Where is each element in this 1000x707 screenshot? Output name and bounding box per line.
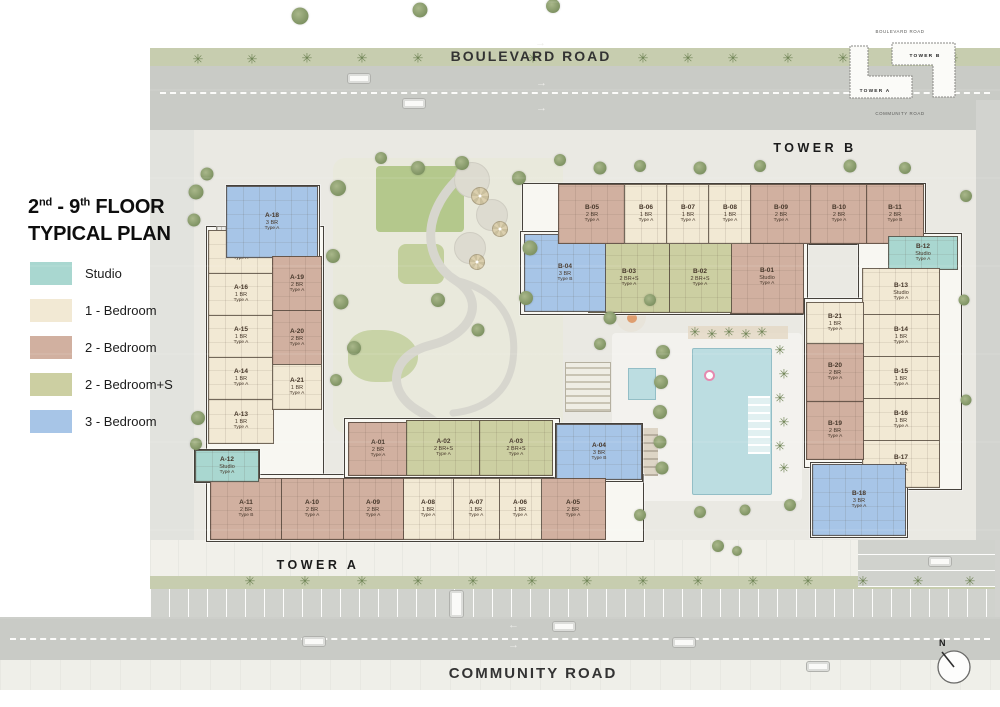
unit-id: B-14 — [894, 326, 908, 334]
unit-id: A-19 — [290, 274, 304, 282]
unit-id: A-13 — [234, 411, 248, 419]
unit-B-11: B-112 BRType B — [866, 184, 924, 244]
unit-B-21: B-211 BRType A — [806, 302, 864, 344]
unit-variant: Type A — [421, 513, 436, 519]
umbrella-icon — [471, 187, 489, 205]
unit-variant: Type A — [693, 282, 708, 288]
compass: N — [920, 630, 990, 692]
palm-tree-icon: ✳ — [741, 328, 752, 341]
unit-id: B-15 — [894, 368, 908, 376]
title-line-1: 2nd - 9th FLOOR — [28, 194, 171, 221]
palm-tree-icon: ✳ — [965, 575, 976, 588]
tree-icon — [899, 162, 911, 174]
page-title: 2nd - 9th FLOOR TYPICAL PLAN — [28, 194, 171, 248]
unit-id: B-21 — [828, 313, 842, 321]
unit-B-18: B-183 BRType A — [812, 464, 906, 536]
unit-id: A-11 — [239, 499, 253, 507]
unit-id: B-01 — [760, 267, 774, 275]
unit-variant: Type A — [828, 434, 843, 440]
tree-icon — [347, 341, 361, 355]
palm-tree-icon: ✳ — [247, 53, 258, 66]
tree-icon — [634, 160, 646, 172]
car-icon — [928, 556, 952, 567]
legend-item-1-bedroom: 1 - Bedroom — [30, 299, 173, 322]
unit-B-19: B-192 BRType A — [806, 400, 864, 460]
tower-b-label: TOWER B — [755, 141, 875, 155]
unit-B-20: B-202 BRType A — [806, 342, 864, 402]
palm-tree-icon: ✳ — [728, 52, 739, 65]
unit-A-07: A-071 BRType A — [452, 478, 500, 540]
unit-variant: Type A — [234, 340, 249, 346]
palm-tree-icon: ✳ — [693, 575, 704, 588]
tree-icon — [960, 190, 972, 202]
palm-tree-icon: ✳ — [300, 575, 311, 588]
unit-A-20: A-202 BRType A — [272, 310, 322, 366]
palm-tree-icon: ✳ — [757, 326, 768, 339]
unit-variant: Type A — [723, 218, 738, 224]
unit-A-05: A-052 BRType A — [540, 478, 606, 540]
unit-id: B-17 — [894, 454, 908, 462]
unit-variant: Type B — [888, 218, 903, 224]
unit-id: A-07 — [469, 499, 483, 507]
unit-B-01: B-01StudioType A — [730, 240, 804, 314]
umbrella-icon — [469, 254, 485, 270]
unit-B-06: B-061 BRType A — [624, 184, 668, 244]
unit-id: B-02 — [693, 268, 707, 276]
unit-variant: Type B — [239, 513, 254, 519]
unit-id: A-06 — [513, 499, 527, 507]
unit-id: B-10 — [832, 204, 846, 212]
boulevard-road-label: BOULEVARD ROAD — [431, 48, 631, 64]
traffic-arrow-icon: → — [508, 640, 519, 651]
tree-icon — [292, 8, 309, 25]
legend-item-2-bedroom: 2 - Bedroom — [30, 336, 173, 359]
unit-id: A-18 — [265, 212, 279, 220]
unit-variant: Type A — [639, 218, 654, 224]
unit-variant: Type A — [220, 470, 235, 476]
tree-icon — [732, 546, 742, 556]
unit-id: B-19 — [828, 420, 842, 428]
title-line-2: TYPICAL PLAN — [28, 221, 171, 248]
unit-B-16: B-161 BRType A — [862, 398, 940, 442]
tree-icon — [201, 168, 214, 181]
unit-id: A-12 — [220, 456, 234, 464]
unit-variant: Type A — [290, 391, 305, 397]
unit-variant: Type A — [305, 513, 320, 519]
tree-icon — [411, 161, 425, 175]
unit-id: A-01 — [371, 439, 385, 447]
unit-B-07: B-071 BRType A — [666, 184, 710, 244]
car-icon — [672, 637, 696, 648]
unit-B-02: B-022 BR+SType A — [668, 243, 732, 313]
palm-tree-icon: ✳ — [245, 575, 256, 588]
legend: Studio 1 - Bedroom 2 - Bedroom 2 - Bedro… — [30, 262, 173, 447]
three-bedroom-swatch — [30, 410, 72, 433]
unit-id: A-08 — [421, 499, 435, 507]
umbrella-icon — [492, 221, 508, 237]
tree-icon — [634, 509, 646, 521]
legend-label: 1 - Bedroom — [85, 303, 157, 318]
tree-icon — [740, 505, 751, 516]
key-map-tower-a-label: TOWER A — [860, 88, 891, 94]
unit-variant: Type A — [832, 218, 847, 224]
unit-variant: Type A — [513, 513, 528, 519]
unit-id: A-14 — [234, 368, 248, 376]
tree-icon — [519, 291, 533, 305]
floor-plan-canvas: A-012 BRType AA-022 BR+SType AA-032 BR+S… — [0, 0, 1000, 707]
unit-variant: Type A — [234, 382, 249, 388]
tree-icon — [431, 293, 445, 307]
palm-tree-icon: ✳ — [783, 52, 794, 65]
unit-id: B-12 — [916, 243, 930, 251]
unit-A-11: A-112 BRType B — [210, 478, 282, 540]
tree-icon — [961, 395, 972, 406]
tree-icon — [604, 312, 617, 325]
unit-id: B-11 — [888, 204, 902, 212]
unit-id: A-20 — [290, 328, 304, 336]
tree-icon — [644, 294, 656, 306]
tree-icon — [472, 324, 485, 337]
unit-variant: Type A — [760, 281, 775, 287]
tree-icon — [523, 241, 538, 256]
palm-tree-icon: ✳ — [193, 53, 204, 66]
palm-tree-icon: ✳ — [779, 368, 790, 381]
unit-A-09: A-092 BRType A — [342, 478, 404, 540]
car-icon — [449, 590, 464, 618]
unit-A-21: A-211 BRType A — [272, 364, 322, 410]
tree-icon — [191, 411, 205, 425]
unit-id: B-16 — [894, 410, 908, 418]
studio-swatch — [30, 262, 72, 285]
unit-B-12: B-12StudioType A — [888, 236, 958, 270]
unit-variant: Type A — [894, 340, 909, 346]
unit-id: A-05 — [566, 499, 580, 507]
unit-id: A-16 — [234, 284, 248, 292]
tree-icon — [694, 162, 707, 175]
car-icon — [806, 661, 830, 672]
two-bedroom-s-swatch — [30, 373, 72, 396]
unit-variant: Type A — [681, 218, 696, 224]
tree-icon — [546, 0, 560, 13]
tree-icon — [334, 295, 349, 310]
unit-id: B-13 — [894, 282, 908, 290]
unit-variant: Type A — [894, 382, 909, 388]
unit-id: B-09 — [774, 204, 788, 212]
unit-id: B-04 — [558, 263, 572, 271]
tree-icon — [330, 374, 342, 386]
unit-variant: Type A — [622, 282, 637, 288]
unit-id: B-05 — [585, 204, 599, 212]
unit-A-02: A-022 BR+SType A — [406, 420, 481, 476]
community-road-label: COMMUNITY ROAD — [413, 665, 653, 682]
unit-variant: Type A — [566, 513, 581, 519]
tree-icon — [189, 185, 204, 200]
unit-variant: Type A — [366, 513, 381, 519]
unit-variant: Type A — [234, 425, 249, 431]
unit-id: A-15 — [234, 326, 248, 334]
tree-icon — [554, 154, 566, 166]
palm-tree-icon: ✳ — [779, 416, 790, 429]
unit-id: B-20 — [828, 362, 842, 370]
unit-id: A-21 — [290, 377, 304, 385]
unit-id: A-04 — [592, 442, 606, 450]
unit-A-14: A-141 BRType A — [208, 356, 274, 400]
palm-tree-icon: ✳ — [527, 575, 538, 588]
unit-B-14: B-141 BRType A — [862, 314, 940, 358]
unit-id: B-07 — [681, 204, 695, 212]
palm-tree-icon: ✳ — [413, 575, 424, 588]
unit-id: A-02 — [436, 438, 450, 446]
legend-label: 2 - Bedroom+S — [85, 377, 173, 392]
unit-A-03: A-032 BR+SType A — [479, 420, 553, 476]
palm-tree-icon: ✳ — [357, 52, 368, 65]
legend-item-3-bedroom: 3 - Bedroom — [30, 410, 173, 433]
unit-variant: Type A — [916, 257, 931, 263]
car-icon — [552, 621, 576, 632]
unit-A-04: A-043 BRType B — [556, 424, 642, 480]
unit-variant: Type A — [290, 288, 305, 294]
tree-icon — [594, 162, 607, 175]
tree-icon — [455, 156, 469, 170]
tree-icon — [656, 345, 670, 359]
legend-item-2-bedroom-s: 2 - Bedroom+S — [30, 373, 173, 396]
palm-tree-icon: ✳ — [582, 575, 593, 588]
tree-icon — [413, 3, 428, 18]
tree-icon — [844, 160, 857, 173]
unit-A-15: A-151 BRType A — [208, 314, 274, 358]
tree-icon — [712, 540, 724, 552]
tower-a-label: TOWER A — [258, 558, 378, 572]
palm-tree-icon: ✳ — [638, 575, 649, 588]
unit-B-09: B-092 BRType A — [750, 184, 812, 244]
unit-variant: Type A — [894, 296, 909, 302]
key-map: BOULEVARD ROAD TOWER A TOWER B COMMUNITY… — [845, 16, 970, 118]
palm-tree-icon: ✳ — [775, 392, 786, 405]
tree-icon — [654, 375, 668, 389]
unit-id: A-09 — [366, 499, 380, 507]
unit-B-15: B-151 BRType A — [862, 356, 940, 400]
key-map-boulevard-label: BOULEVARD ROAD — [875, 29, 924, 34]
unit-variant: Type A — [828, 327, 843, 333]
palm-tree-icon: ✳ — [803, 575, 814, 588]
unit-B-08: B-081 BRType A — [708, 184, 752, 244]
unit-variant: Type A — [585, 218, 600, 224]
car-icon — [402, 98, 426, 109]
unit-B-05: B-052 BRType A — [558, 184, 626, 244]
unit-id: B-18 — [852, 490, 866, 498]
traffic-arrow-icon: → — [536, 103, 547, 114]
car-icon — [302, 636, 326, 647]
unit-B-10: B-102 BRType A — [810, 184, 868, 244]
tree-icon — [190, 438, 202, 450]
unit-A-06: A-061 BRType A — [498, 478, 542, 540]
legend-label: Studio — [85, 266, 122, 281]
palm-tree-icon: ✳ — [748, 575, 759, 588]
one-bedroom-swatch — [30, 299, 72, 322]
palm-tree-icon: ✳ — [468, 575, 479, 588]
palm-tree-icon: ✳ — [858, 575, 869, 588]
tree-icon — [654, 436, 667, 449]
palm-tree-icon: ✳ — [690, 326, 701, 339]
unit-id: A-10 — [305, 499, 319, 507]
unit-variant: Type A — [828, 376, 843, 382]
unit-id: B-03 — [622, 268, 636, 276]
unit-variant: Type A — [894, 424, 909, 430]
palm-tree-icon: ✳ — [638, 52, 649, 65]
tree-icon — [784, 499, 796, 511]
unit-B-13: B-13StudioType A — [862, 268, 940, 316]
unit-A-13: A-131 BRType A — [208, 398, 274, 444]
palm-tree-icon: ✳ — [775, 344, 786, 357]
palm-tree-icon: ✳ — [413, 52, 424, 65]
compass-n-label: N — [939, 638, 946, 648]
unit-variant: Type A — [469, 513, 484, 519]
unit-variant: Type B — [592, 456, 607, 462]
tree-icon — [754, 160, 766, 172]
palm-tree-icon: ✳ — [779, 462, 790, 475]
legend-label: 3 - Bedroom — [85, 414, 157, 429]
tree-icon — [594, 338, 606, 350]
key-map-community-label: COMMUNITY ROAD — [875, 111, 924, 116]
palm-tree-icon: ✳ — [775, 440, 786, 453]
palm-tree-icon: ✳ — [913, 575, 924, 588]
traffic-arrow-icon: → — [536, 78, 547, 89]
unit-variant: Type A — [371, 453, 386, 459]
unit-A-10: A-102 BRType A — [280, 478, 344, 540]
unit-A-16: A-161 BRType A — [208, 272, 274, 316]
unit-variant: Type A — [774, 218, 789, 224]
palm-tree-icon: ✳ — [683, 52, 694, 65]
tree-icon — [375, 152, 387, 164]
legend-item-studio: Studio — [30, 262, 173, 285]
tree-icon — [694, 506, 706, 518]
tree-icon — [959, 295, 970, 306]
unit-A-01: A-012 BRType A — [348, 422, 408, 476]
car-icon — [347, 73, 371, 84]
unit-variant: Type A — [852, 504, 867, 510]
traffic-arrow-icon: ← — [508, 620, 519, 631]
unit-A-19: A-192 BRType A — [272, 256, 322, 312]
key-map-tower-b-label: TOWER B — [910, 53, 941, 59]
unit-id: B-08 — [723, 204, 737, 212]
tree-icon — [326, 249, 340, 263]
unit-variant: Type A — [234, 298, 249, 304]
palm-tree-icon: ✳ — [302, 52, 313, 65]
unit-id: A-03 — [509, 438, 523, 446]
unit-A-18: A-183 BRType A — [226, 186, 318, 258]
palm-tree-icon: ✳ — [707, 328, 718, 341]
unit-variant: Type A — [509, 452, 524, 458]
unit-variant: Type A — [265, 226, 280, 232]
palm-tree-icon: ✳ — [724, 326, 735, 339]
tree-icon — [656, 462, 669, 475]
tree-icon — [330, 180, 346, 196]
legend-label: 2 - Bedroom — [85, 340, 157, 355]
tree-icon — [512, 171, 526, 185]
unit-A-12: A-12StudioType A — [195, 450, 259, 482]
palm-tree-icon: ✳ — [357, 575, 368, 588]
unit-variant: Type B — [558, 277, 573, 283]
tree-icon — [188, 214, 201, 227]
unit-A-08: A-081 BRType A — [402, 478, 454, 540]
unit-variant: Type A — [436, 452, 451, 458]
unit-variant: Type A — [290, 342, 305, 348]
two-bedroom-swatch — [30, 336, 72, 359]
unit-id: B-06 — [639, 204, 653, 212]
tree-icon — [653, 405, 667, 419]
